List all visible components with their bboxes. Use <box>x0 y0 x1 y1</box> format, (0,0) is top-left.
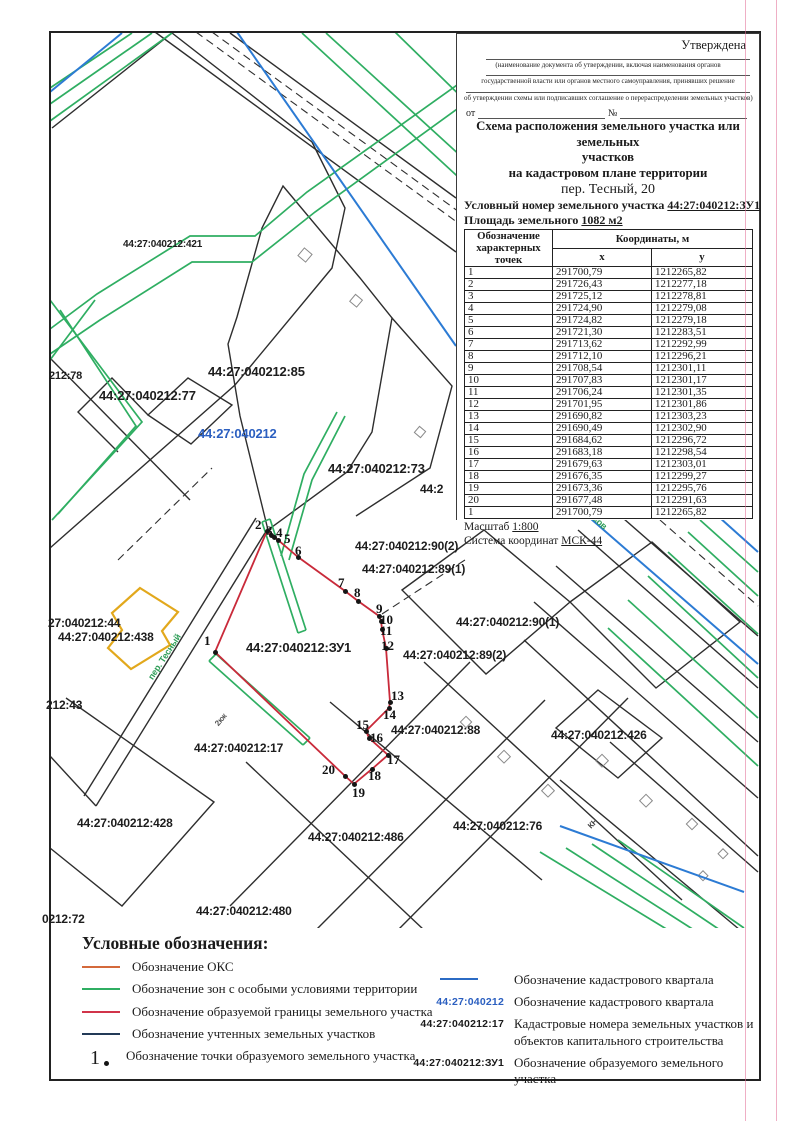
coordinates-table: Обозначение характерных точек Координаты… <box>464 229 753 519</box>
scan-line <box>745 0 746 1121</box>
table-row: 20291677,481212291,63 <box>465 495 753 507</box>
blank-line <box>486 75 750 76</box>
legend-item: Обозначение кадастрового квартала <box>404 972 754 989</box>
approval-note-1: (наименование документа об утверждении, … <box>464 61 752 69</box>
coords-column-header: Координаты, м <box>553 229 753 248</box>
scale-label: Масштаб <box>464 521 509 533</box>
legend-item: Обозначение ОКС <box>82 959 442 975</box>
legend-item-label: Обозначение образуемого земельного участ… <box>514 1055 754 1089</box>
legend-item-label: Обозначение зон с особыми условиями терр… <box>132 981 417 997</box>
legend-line-swatch <box>404 972 504 986</box>
table-row: 11291706,241212301,35 <box>465 387 753 399</box>
coord-system-line: Система координат МСК-44 <box>464 535 752 547</box>
document-title-line2: участков <box>464 150 752 165</box>
scale-line: Масштаб 1:800 <box>464 521 752 533</box>
legend-line-swatch <box>82 966 120 968</box>
table-row: 10291707,831212301,17 <box>465 375 753 387</box>
legend-item: Обозначение зон с особыми условиями терр… <box>82 981 442 997</box>
legend-panel: Условные обозначения: Обозначение ОКСОбо… <box>52 928 758 1078</box>
area-label: Площадь земельного <box>464 213 578 227</box>
legend-line-swatch <box>82 988 120 990</box>
legend-code: 44:27:040212:17 <box>404 1016 504 1030</box>
legend-item: Обозначение образуемой границы земельног… <box>82 1004 442 1020</box>
conditional-number-line: Условный номер земельного участка 44:27:… <box>464 198 752 212</box>
blank-line <box>486 59 750 60</box>
conditional-number-label: Условный номер земельного участка <box>464 198 664 212</box>
conditional-number-value: 44:27:040212:ЗУ1 <box>667 198 760 212</box>
document-title-line1: Схема расположения земельного участка ил… <box>464 119 752 150</box>
legend-title: Условные обозначения: <box>82 933 268 954</box>
area-value: 1082 м2 <box>581 213 622 227</box>
legend-right: Обозначение кадастрового квартала44:27:0… <box>404 972 754 1093</box>
cadastral-scheme-page: { "approval": { "approved_label": "Утвер… <box>0 0 793 1121</box>
table-row: 17291679,631212303,01 <box>465 459 753 471</box>
approval-note-2: государственной власти или органов местн… <box>464 77 752 85</box>
legend-item-label: Обозначение ОКС <box>132 959 234 975</box>
x-column-header: x <box>553 248 652 267</box>
legend-item: 44:27:040212:ЗУ1Обозначение образуемого … <box>404 1055 754 1089</box>
table-row: 7291713,621212292,99 <box>465 339 753 351</box>
header-panel: Утверждена (наименование документа об ут… <box>456 33 760 520</box>
table-row: 12291701,951212301,86 <box>465 399 753 411</box>
table-row: 5291724,821212279,18 <box>465 315 753 327</box>
table-row: 18291676,351212299,27 <box>465 471 753 483</box>
legend-item: 1Обозначение точки образуемого земельног… <box>82 1048 442 1068</box>
table-row: 19291673,361212295,76 <box>465 483 753 495</box>
table-row: 8291712,101212296,21 <box>465 351 753 363</box>
coord-system-value: МСК-44 <box>561 535 602 547</box>
table-row: 14291690,491212302,90 <box>465 423 753 435</box>
coord-system-label: Система координат <box>464 535 558 547</box>
points-column-header: Обозначение характерных точек <box>465 229 553 266</box>
table-row: 4291724,901212279,08 <box>465 303 753 315</box>
table-row: 13291690,821212303,23 <box>465 411 753 423</box>
address: пер. Тесный, 20 <box>464 182 752 198</box>
area-line: Площадь земельного 1082 м2 <box>464 213 752 227</box>
legend-left: Обозначение ОКСОбозначение зон с особыми… <box>82 959 442 1074</box>
number-label: № <box>608 108 618 119</box>
legend-line-swatch <box>82 1011 120 1013</box>
table-row: 9291708,541212301,11 <box>465 363 753 375</box>
legend-code: 44:27:040212 <box>404 994 504 1008</box>
legend-point-symbol: 1 <box>90 1048 100 1068</box>
table-row: 16291683,181212298,54 <box>465 447 753 459</box>
legend-item: 44:27:040212Обозначение кадастрового ква… <box>404 994 754 1011</box>
legend-item-label: Обозначение кадастрового квартала <box>514 994 714 1011</box>
table-row: 2291726,431212277,18 <box>465 279 753 291</box>
table-row: 15291684,621212296,72 <box>465 435 753 447</box>
document-title-line3: на кадастровом плане территории <box>464 166 752 181</box>
legend-item-label: Кадастровые номера земельных участков и … <box>514 1016 754 1050</box>
table-row: 1291700,791212265,82 <box>465 507 753 519</box>
legend-item: Обозначение учтенных земельных участков <box>82 1026 442 1042</box>
table-row: 6291721,301212283,51 <box>465 327 753 339</box>
legend-line-swatch <box>82 1033 120 1035</box>
from-label: от <box>466 108 475 119</box>
table-row: 1291700,791212265,82 <box>465 267 753 279</box>
legend-item-label: Обозначение кадастрового квартала <box>514 972 714 989</box>
blank-line <box>466 92 750 93</box>
approval-note-3: об утверждении схемы или подписавших сог… <box>464 94 752 102</box>
approved-label: Утверждена <box>464 38 752 53</box>
scan-line <box>776 0 777 1121</box>
legend-item-label: Обозначение точки образуемого земельного… <box>126 1048 415 1064</box>
table-row: 3291725,121212278,81 <box>465 291 753 303</box>
legend-item: 44:27:040212:17Кадастровые номера земель… <box>404 1016 754 1050</box>
scale-value: 1:800 <box>512 521 538 533</box>
legend-code: 44:27:040212:ЗУ1 <box>404 1055 504 1069</box>
coords-table-body: 1291700,791212265,822291726,431212277,18… <box>465 267 753 519</box>
formed-parcel-boundary <box>215 531 390 784</box>
legend-item-label: Обозначение образуемой границы земельног… <box>132 1004 433 1020</box>
legend-item-label: Обозначение учтенных земельных участков <box>132 1026 375 1042</box>
date-number-line: от № <box>464 106 752 119</box>
y-column-header: y <box>652 248 753 267</box>
